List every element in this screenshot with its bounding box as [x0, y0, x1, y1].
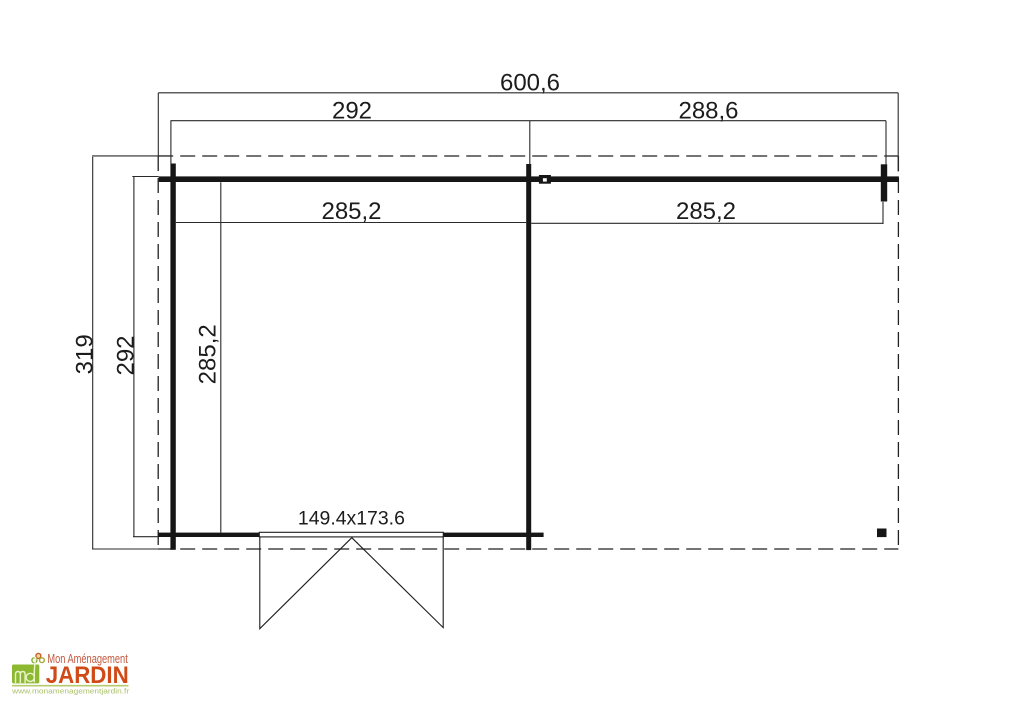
- svg-text:285,2: 285,2: [194, 324, 221, 384]
- svg-text:149.4x173.6: 149.4x173.6: [298, 509, 405, 530]
- svg-text:285,2: 285,2: [676, 198, 736, 225]
- svg-text:www.monamenagementjardin.fr: www.monamenagementjardin.fr: [11, 686, 130, 695]
- svg-text:292: 292: [332, 98, 372, 125]
- svg-text:319: 319: [71, 334, 98, 374]
- svg-text:285,2: 285,2: [321, 198, 381, 225]
- svg-text:288,6: 288,6: [678, 98, 738, 125]
- svg-text:292: 292: [112, 335, 139, 375]
- svg-text:600,6: 600,6: [500, 70, 560, 97]
